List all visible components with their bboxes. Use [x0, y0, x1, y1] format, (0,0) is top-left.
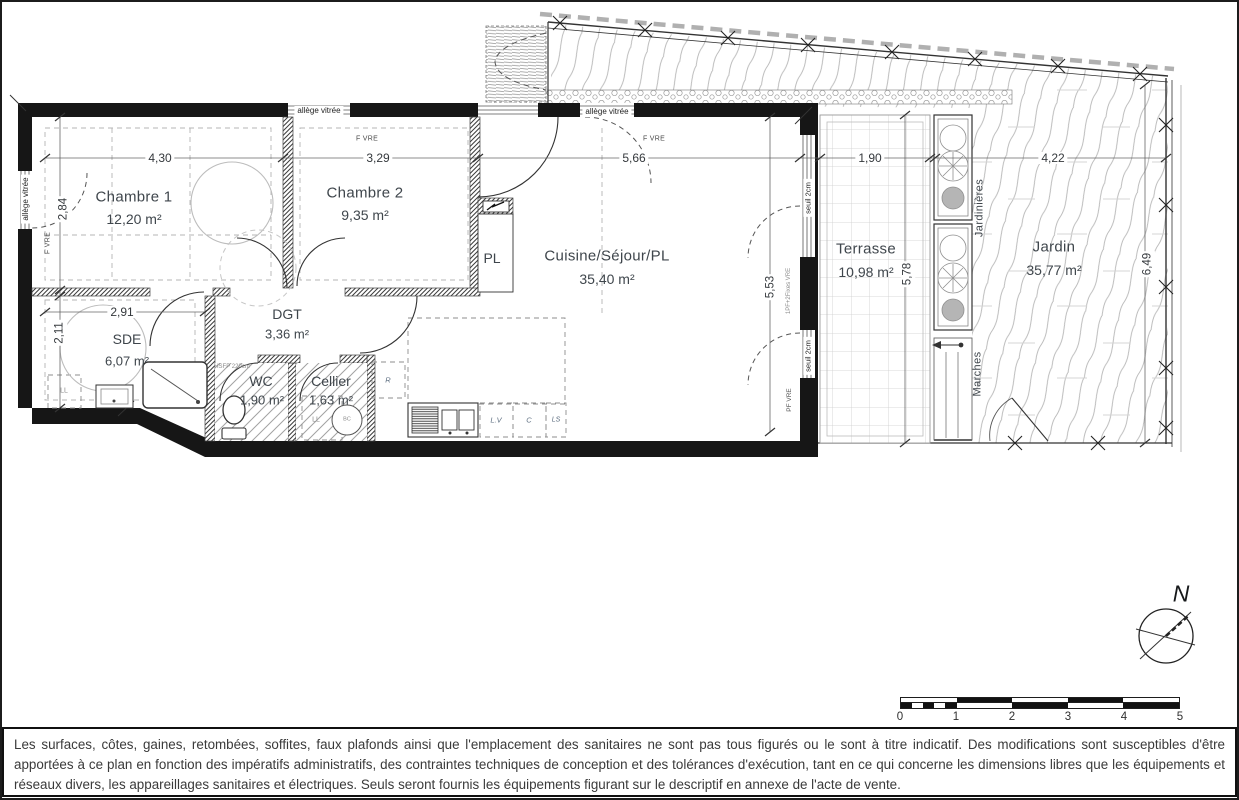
scale-bar: 0 1 2 3 4 5	[900, 697, 1180, 725]
room-label-wc: WC	[249, 374, 272, 388]
room-area-terrasse: 10,98 m²	[838, 265, 893, 279]
label-jardinieres: Jardinières	[975, 179, 986, 237]
dim-4-30: 4,30	[145, 152, 174, 164]
room-area-chambre2: 9,35 m²	[341, 208, 388, 222]
tag-allege-vitree-2: allège vitrée	[582, 107, 631, 117]
tag-1pf-2fixes-vre: 1PF+2Fixes VRE	[786, 268, 792, 314]
scale-tick-3: 3	[1065, 711, 1071, 723]
tag-hsfp-220: HSFP 220cm	[214, 364, 250, 370]
washbasin	[96, 385, 133, 408]
dim-3-29: 3,29	[363, 152, 392, 164]
tag-f-vre-3: F VRE	[45, 232, 52, 254]
gravel-strip	[488, 90, 1012, 104]
scale-bar-numbers: 0 1 2 3 4 5	[900, 711, 1180, 725]
garden-steps	[932, 338, 972, 440]
tag-allege-vitree-1: allège vitrée	[294, 106, 343, 116]
label-marches: Marches	[973, 352, 984, 397]
tag-ll-cellier: LL	[312, 417, 320, 424]
dim-2-91: 2,91	[107, 306, 136, 318]
electrical-panel	[483, 201, 509, 212]
room-label-dgt: DGT	[272, 307, 302, 321]
tag-cuisson: C	[526, 416, 531, 424]
scale-tick-2: 2	[1009, 711, 1015, 723]
tag-seuil-1: seuil 2cm	[803, 179, 813, 217]
dim-5-53: 5,53	[764, 274, 778, 300]
dim-4-22: 4,22	[1038, 152, 1067, 164]
room-area-sde: 6,07 m²	[105, 355, 149, 368]
tag-f-vre-2: F VRE	[643, 136, 665, 143]
room-label-chambre1: Chambre 1	[96, 190, 173, 205]
room-label-cellier: Cellier	[311, 374, 351, 388]
floor-plan-drawing	[0, 0, 1239, 800]
room-area-cellier: 1,63 m²	[309, 394, 353, 407]
jardinieres-planters	[934, 115, 972, 330]
room-area-dgt: 3,36 m²	[265, 328, 309, 341]
room-label-sde: SDE	[113, 332, 142, 346]
scale-tick-0: 0	[897, 711, 903, 723]
legal-disclaimer: Les surfaces, côtes, gaines, retombées, …	[2, 727, 1237, 797]
tag-refrigerator: R	[385, 376, 390, 384]
dim-5-66: 5,66	[619, 152, 648, 164]
dim-5-78: 5,78	[901, 261, 915, 287]
dim-2-11: 2,11	[53, 320, 67, 346]
room-label-cuisine-sejour: Cuisine/Séjour/PL	[544, 249, 669, 264]
dim-6-49: 6,49	[1141, 251, 1155, 277]
room-label-terrasse: Terrasse	[836, 242, 896, 257]
tag-lave-vaisselle: L.V	[490, 416, 501, 424]
room-label-pl: PL	[483, 251, 500, 265]
room-area-jardin: 35,77 m²	[1026, 263, 1081, 277]
room-area-cuisine-sejour: 35,40 m²	[579, 272, 634, 286]
compass-icon	[1136, 609, 1195, 663]
scale-tick-5: 5	[1177, 711, 1183, 723]
scale-tick-4: 4	[1121, 711, 1127, 723]
floor-plan-page: Chambre 1 12,20 m² Chambre 2 9,35 m² Cui…	[0, 0, 1239, 800]
tag-pf-vre: PF VRE	[787, 388, 794, 411]
north-label: N	[1173, 583, 1190, 606]
dim-1-90: 1,90	[855, 152, 884, 164]
room-area-chambre1: 12,20 m²	[106, 212, 161, 226]
room-area-wc: 1,90 m²	[240, 394, 284, 407]
room-label-chambre2: Chambre 2	[327, 186, 404, 201]
tag-seuil-2: seuil 2cm	[803, 337, 813, 375]
tag-ll-sde: LL	[60, 388, 68, 395]
scale-bar-stripes	[900, 697, 1180, 709]
dim-2-84: 2,84	[57, 196, 71, 222]
tag-ballon-chauffe: BC	[343, 417, 351, 423]
tag-f-vre-1: F VRE	[356, 136, 378, 143]
tag-lave-sechant: LS	[552, 417, 561, 424]
room-label-jardin: Jardin	[1033, 240, 1076, 255]
tag-allege-vitree-3: allège vitrée	[21, 174, 31, 223]
scale-tick-1: 1	[953, 711, 959, 723]
kitchen-fixtures	[408, 403, 478, 437]
